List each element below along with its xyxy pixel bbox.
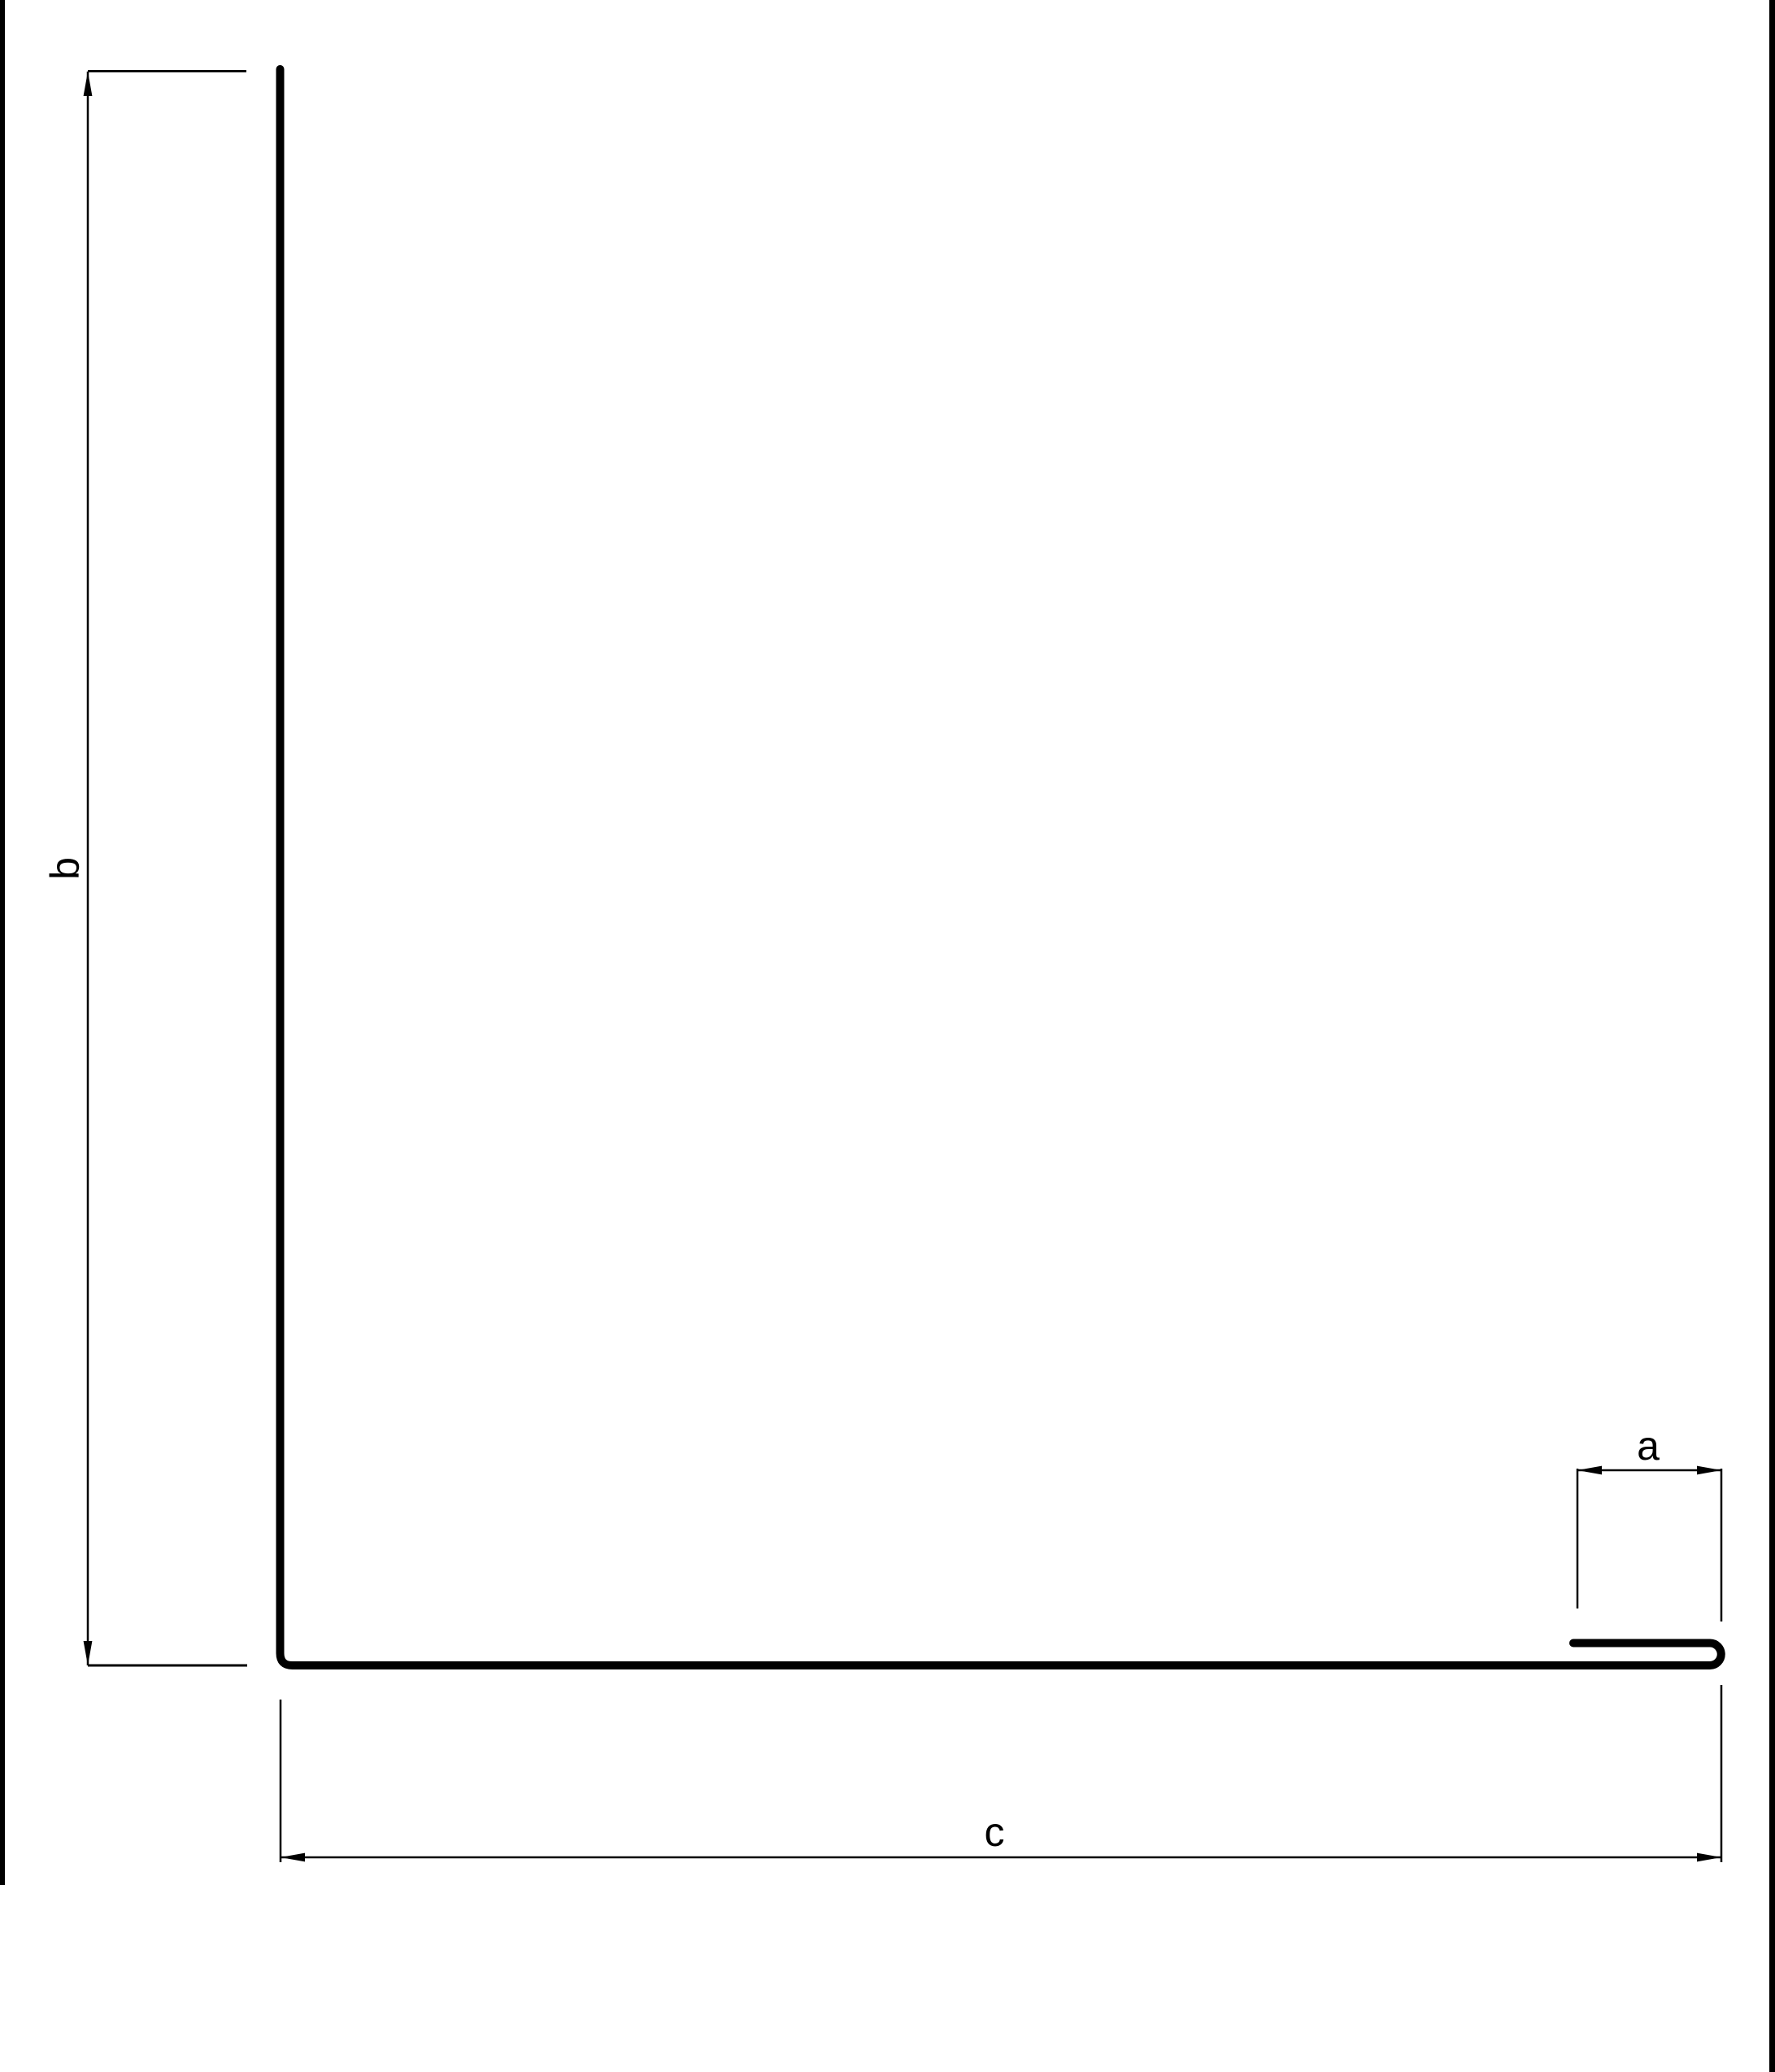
dimension-a-arrow-right-icon [1697, 1466, 1721, 1475]
dimension-a-arrow-left-icon [1577, 1466, 1602, 1475]
dimension-c-arrow-right-icon [1697, 1853, 1721, 1862]
dimension-b-arrow-up-icon [84, 72, 93, 96]
dimension-b-arrow-down-icon [84, 1641, 93, 1665]
profile-outline [281, 69, 1721, 1665]
dimension-c-label: c [985, 1809, 1005, 1855]
drawing-page: b a c [0, 0, 1775, 2072]
dimension-a: a [1577, 1423, 1721, 1621]
dimension-a-label: a [1637, 1423, 1660, 1469]
dimension-c: c [281, 1685, 1721, 1862]
profile-diagram: b a c [0, 0, 1775, 2072]
dimension-b-label: b [42, 857, 88, 880]
dimension-b: b [42, 72, 247, 1666]
scan-edge-right [1769, 0, 1775, 2072]
scan-edge-left [0, 0, 5, 1885]
dimension-c-arrow-left-icon [281, 1853, 305, 1862]
